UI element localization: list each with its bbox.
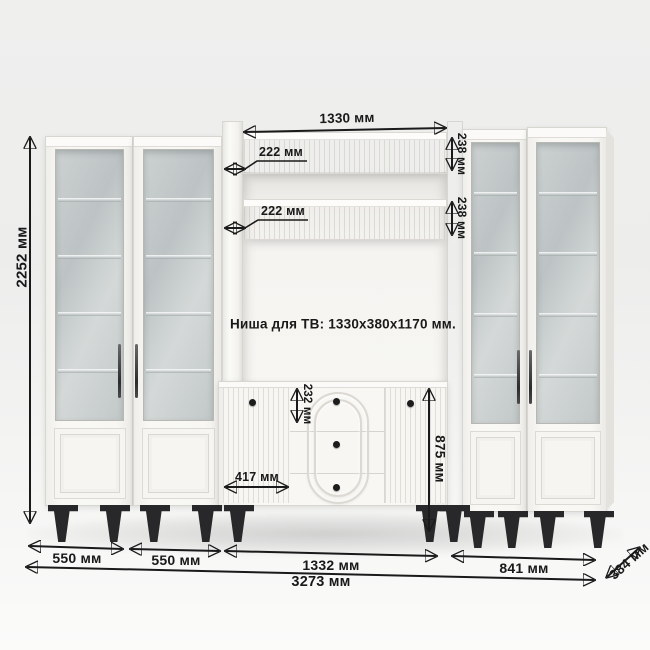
leader-shelf-depth-upper [245, 161, 307, 169]
label-width-cabinet-2: 550 мм [151, 552, 200, 568]
leader-shelf-depth-lower [245, 220, 308, 228]
label-total-height: 2252 мм [14, 226, 31, 287]
label-width-total: 3273 мм [291, 574, 350, 590]
label-shelf-face-lower: 238 мм [455, 197, 469, 239]
label-width-center: 1332 мм [302, 557, 359, 573]
label-shelf-depth-lower: 222 мм [261, 204, 305, 218]
diagram-scene: 2252 мм 1330 мм 222 мм 222 мм 238 мм 238… [0, 0, 650, 650]
dim-width-cabinet-2 [131, 549, 219, 551]
dim-width-cabinet-1 [30, 546, 122, 549]
label-shelf-depth-upper: 222 мм [259, 145, 303, 159]
dim-shelf-length [245, 128, 445, 132]
label-stand-height: 875 мм [433, 435, 448, 482]
label-drawer-height: 232 мм [301, 384, 313, 425]
label-door-width: 417 мм [235, 470, 279, 484]
label-tv-niche: Ниша для ТВ: 1330х380х1170 мм. [230, 317, 456, 332]
label-shelf-face-upper: 238 мм [455, 133, 469, 175]
label-width-right: 841 мм [499, 560, 548, 576]
label-shelf-length: 1330 мм [319, 110, 374, 126]
dim-width-center [226, 551, 436, 556]
label-width-cabinet-1: 550 мм [52, 550, 101, 566]
